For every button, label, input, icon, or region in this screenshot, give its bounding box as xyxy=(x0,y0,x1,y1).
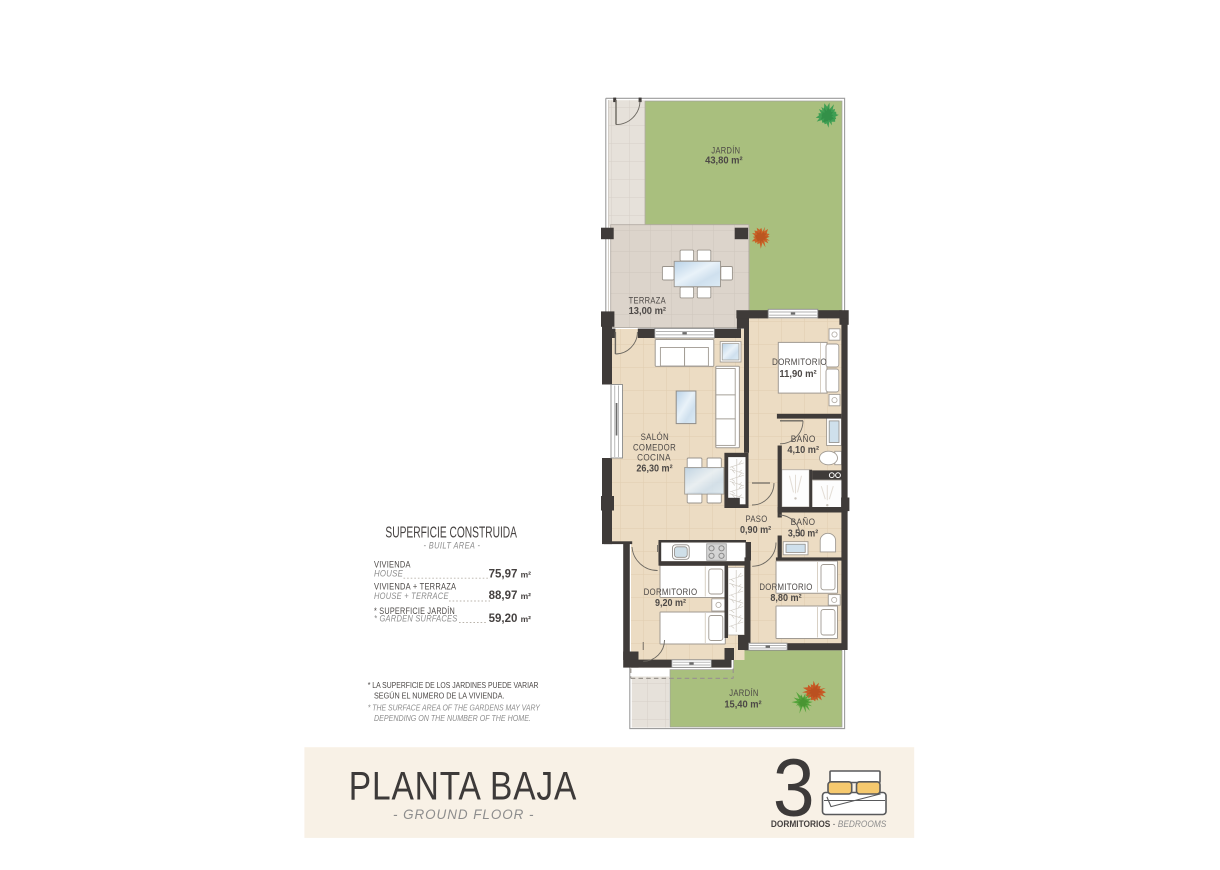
svg-text:15,40 m²: 15,40 m² xyxy=(724,699,762,710)
svg-text:8,80 m²: 8,80 m² xyxy=(770,593,802,604)
svg-text:PLANTA BAJA: PLANTA BAJA xyxy=(349,764,577,808)
svg-text:JARDÍN: JARDÍN xyxy=(729,688,759,698)
svg-text:* LA SUPERFICIE DE LOS JARDINE: * LA SUPERFICIE DE LOS JARDINES PUEDE VA… xyxy=(368,680,539,690)
svg-text:SEGÚN EL NUMERO DE LA VIVIENDA: SEGÚN EL NUMERO DE LA VIVIENDA. xyxy=(374,690,504,700)
svg-text:COCINA: COCINA xyxy=(637,452,671,462)
svg-text:DORMITORIOS - BEDROOMS: DORMITORIOS - BEDROOMS xyxy=(771,819,887,829)
svg-text:- GROUND FLOOR -: - GROUND FLOOR - xyxy=(393,806,535,822)
svg-text:59,20 m²: 59,20 m² xyxy=(489,613,532,625)
svg-text:- BUILT AREA -: - BUILT AREA - xyxy=(423,541,480,552)
svg-text:BAÑO: BAÑO xyxy=(791,434,816,444)
svg-text:0,90 m²: 0,90 m² xyxy=(740,525,772,536)
svg-text:SALÓN: SALÓN xyxy=(641,432,669,442)
svg-text:DORMITORIO: DORMITORIO xyxy=(772,357,827,367)
svg-text:26,30 m²: 26,30 m² xyxy=(636,463,673,474)
svg-text:COMEDOR: COMEDOR xyxy=(633,442,676,452)
svg-text:* GARDEN SURFACES: * GARDEN SURFACES xyxy=(374,613,458,624)
svg-text:* THE SURFACE AREA OF THE GARD: * THE SURFACE AREA OF THE GARDENS MAY VA… xyxy=(368,703,541,713)
svg-text:HOUSE: HOUSE xyxy=(374,567,403,578)
svg-text:43,80 m²: 43,80 m² xyxy=(705,156,743,167)
svg-text:11,90 m²: 11,90 m² xyxy=(779,369,817,380)
svg-text:SUPERFICIE CONSTRUIDA: SUPERFICIE CONSTRUIDA xyxy=(385,524,517,541)
svg-text:TERRAZA: TERRAZA xyxy=(629,295,667,305)
svg-text:DORMITORIO: DORMITORIO xyxy=(759,582,812,592)
svg-text:88,97 m²: 88,97 m² xyxy=(489,590,532,602)
svg-text:DORMITORIO: DORMITORIO xyxy=(644,587,698,597)
svg-text:3,50 m²: 3,50 m² xyxy=(788,529,819,540)
svg-text:PASO: PASO xyxy=(745,514,767,524)
svg-text:13,00 m²: 13,00 m² xyxy=(629,306,667,317)
svg-text:75,97 m²: 75,97 m² xyxy=(489,568,532,580)
svg-text:4,10 m²: 4,10 m² xyxy=(787,445,819,456)
svg-text:9,20 m²: 9,20 m² xyxy=(655,598,687,609)
svg-text:HOUSE + TERRACE: HOUSE + TERRACE xyxy=(374,590,449,601)
svg-text:BAÑO: BAÑO xyxy=(791,517,816,527)
svg-text:JARDÍN: JARDÍN xyxy=(711,146,740,156)
svg-text:DEPENDING ON THE NUMBER OF THE: DEPENDING ON THE NUMBER OF THE HOME. xyxy=(374,713,531,723)
